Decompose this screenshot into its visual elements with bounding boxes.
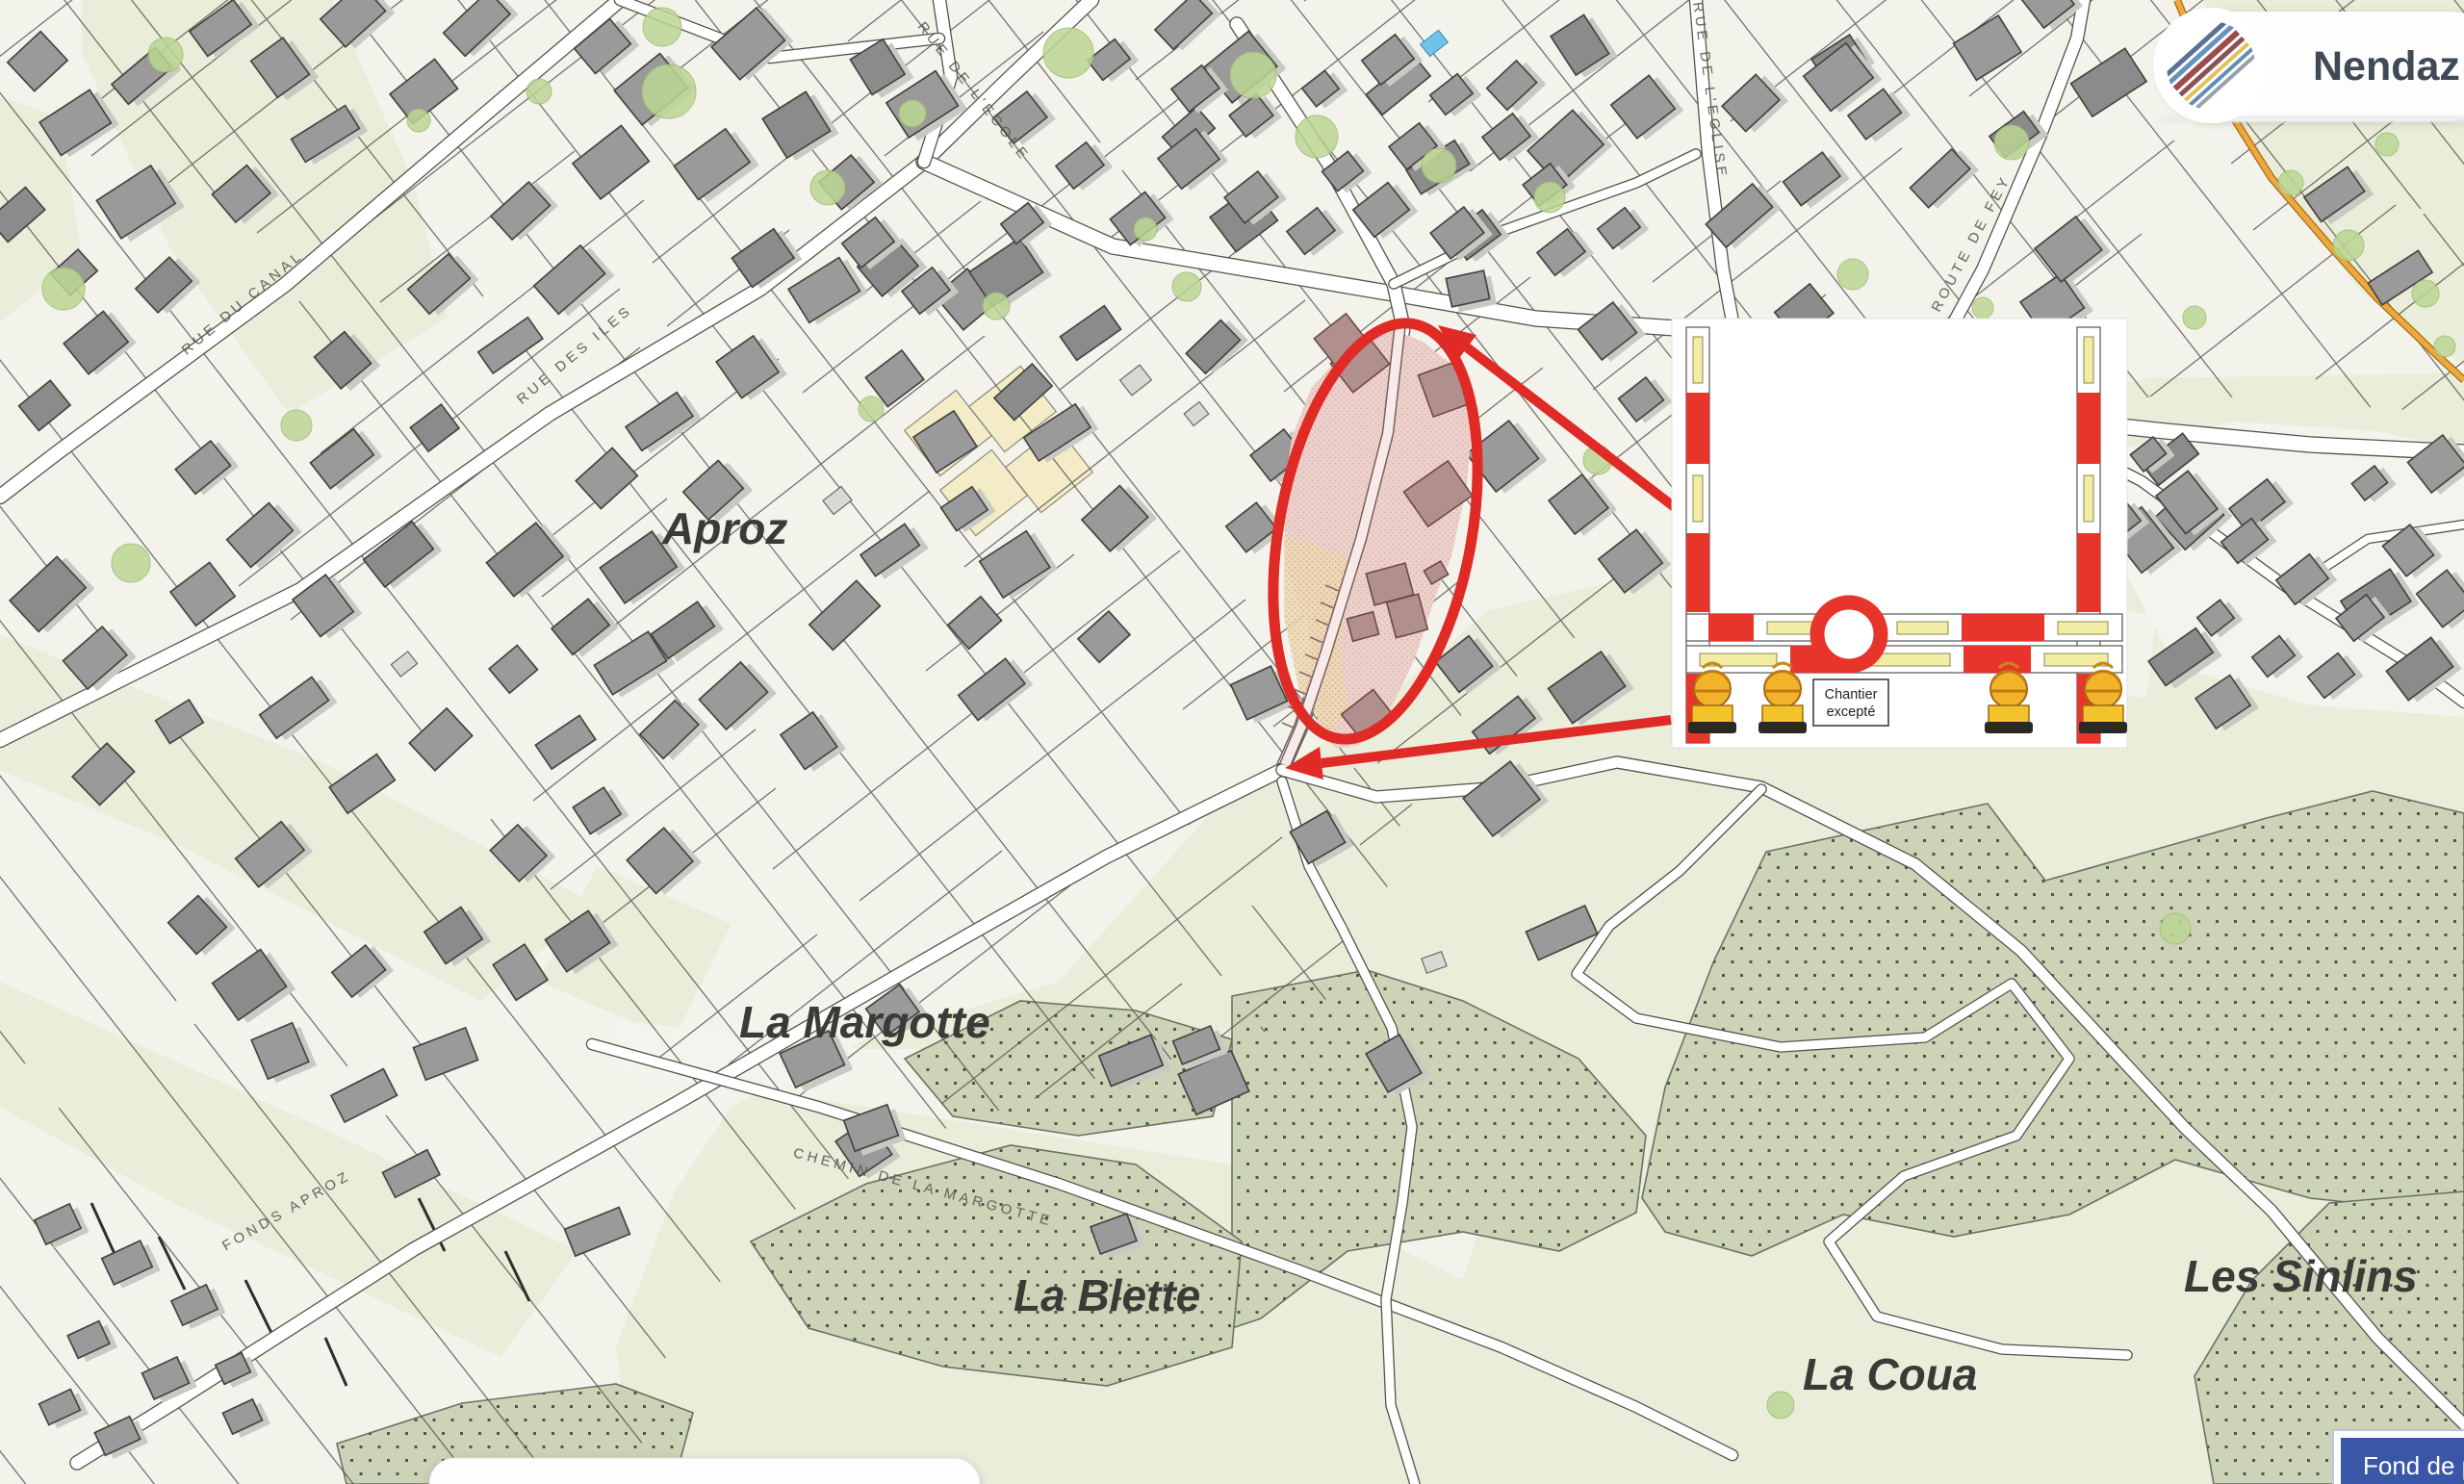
svg-text:La Blette: La Blette (1014, 1270, 1200, 1320)
svg-text:Aproz: Aproz (661, 503, 787, 553)
svg-text:Fond de p: Fond de p (2363, 1451, 2464, 1480)
svg-text:Les Sinlins: Les Sinlins (2184, 1251, 2418, 1301)
svg-text:La Coua: La Coua (1803, 1349, 1977, 1399)
svg-text:La Margotte: La Margotte (739, 997, 990, 1047)
svg-text:Nendaz: Nendaz (2313, 43, 2460, 90)
svg-text:Chantier: Chantier (1825, 687, 1878, 703)
svg-text:excepté: excepté (1827, 704, 1876, 720)
